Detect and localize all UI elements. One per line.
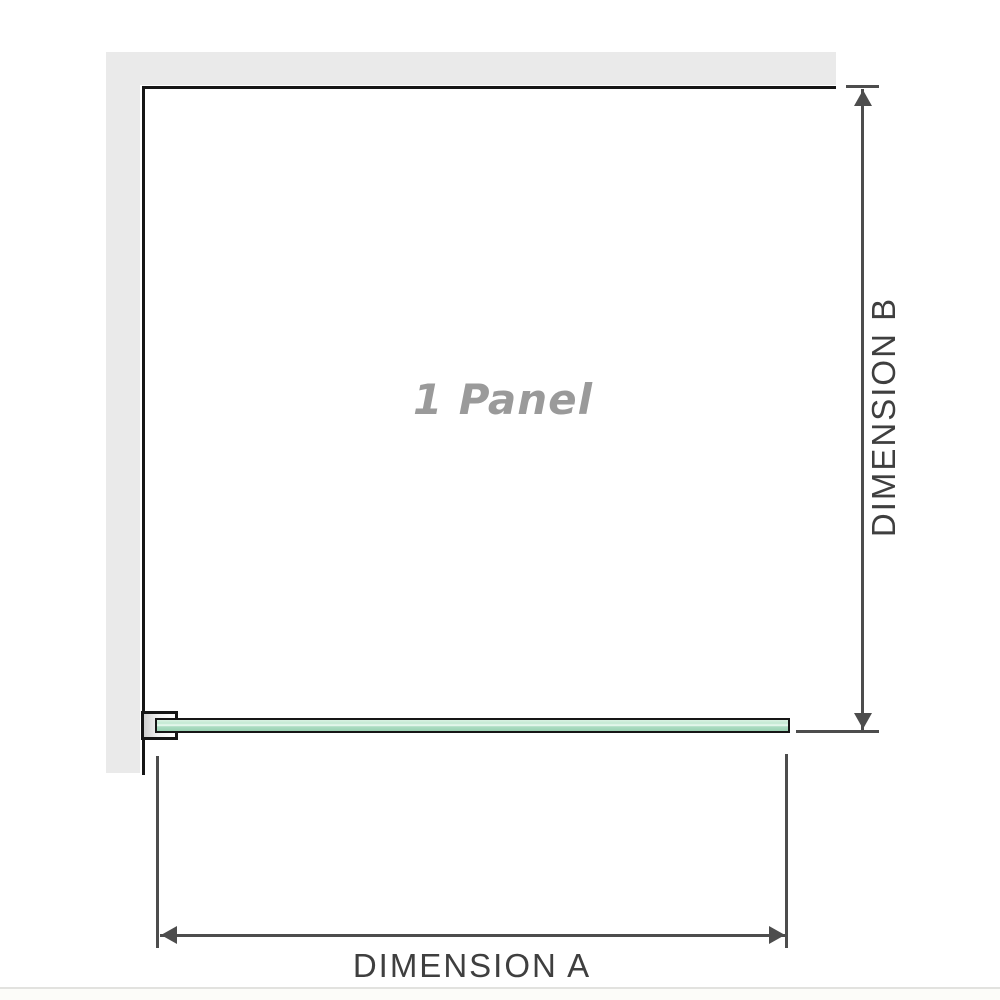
- wall-top-strip: [106, 52, 836, 85]
- dimension-a-label: DIMENSION A: [222, 944, 722, 988]
- arrowhead-down-icon: [854, 713, 872, 729]
- dimension-a-extension-right: [785, 754, 788, 948]
- panel-count-label: 1 Panel: [330, 368, 676, 430]
- dimension-a-line: [160, 934, 786, 937]
- dimension-b-tick-top: [846, 85, 879, 88]
- dimension-a-extension-left: [156, 756, 159, 948]
- panel-outline-left: [142, 86, 145, 775]
- wall-left-strip: [106, 52, 140, 773]
- panel-outline-top: [142, 86, 836, 89]
- glass-panel-bar: [155, 718, 790, 733]
- arrowhead-up-icon: [854, 90, 872, 106]
- arrowhead-right-icon: [769, 926, 785, 944]
- shower-panel-dimension-diagram: 1 Panel DIMENSION B DIMENSION A: [0, 0, 1000, 1000]
- photo-bottom-edge: [0, 987, 1000, 1000]
- dimension-b-tick-bottom: [796, 730, 879, 733]
- dimension-b-label: DIMENSION B: [862, 317, 906, 517]
- arrowhead-left-icon: [161, 926, 177, 944]
